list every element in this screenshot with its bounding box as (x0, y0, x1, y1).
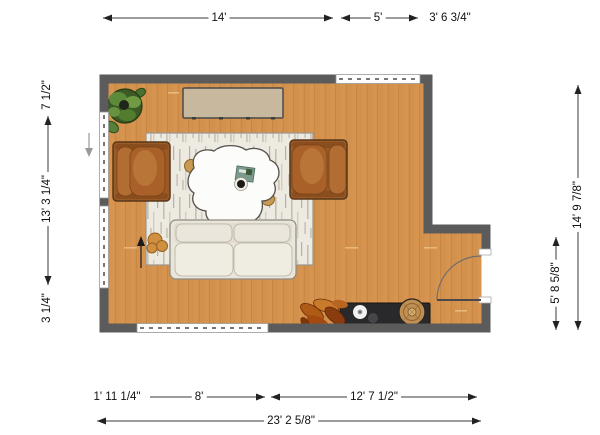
sofa[interactable] (170, 220, 296, 279)
dim-label-bottom-1: 1' 11 1/4" (91, 390, 144, 404)
window-bottom[interactable] (137, 324, 268, 333)
exterior-arrow-down (85, 133, 93, 157)
sideboard[interactable] (183, 88, 283, 120)
dim-label-bottom-2: 8' (192, 390, 207, 404)
dim-label-left-2: 13' 3 1/4" (40, 172, 54, 226)
dim-label-left-3: 3 1/4" (40, 290, 54, 326)
armchair-left[interactable] (113, 142, 170, 201)
round-stool[interactable] (399, 299, 425, 325)
window-left-lower[interactable] (100, 206, 109, 288)
window-left-upper[interactable] (100, 112, 109, 198)
floor-plan-canvas: 14' 5' 3' 6 3/4" 7 1/2" 13' 3 1/4" 3 1/4… (0, 0, 600, 435)
window-top[interactable] (336, 75, 420, 84)
floor-plan-drawing (0, 0, 600, 435)
dim-label-right-2: 5' 8 5/8" (549, 259, 563, 306)
dim-label-top-1: 14' (209, 11, 230, 25)
dim-label-right-1: 14' 9 7/8" (571, 178, 585, 232)
dim-label-bottom-total: 23' 2 5/8" (264, 414, 318, 428)
dim-label-top-3: 3' 6 3/4" (426, 11, 473, 25)
dim-label-bottom-3: 12' 7 1/2" (347, 390, 401, 404)
dim-label-top-2: 5' (371, 11, 386, 25)
armchair-right[interactable] (290, 140, 347, 199)
dim-label-left-1: 7 1/2" (40, 77, 54, 113)
